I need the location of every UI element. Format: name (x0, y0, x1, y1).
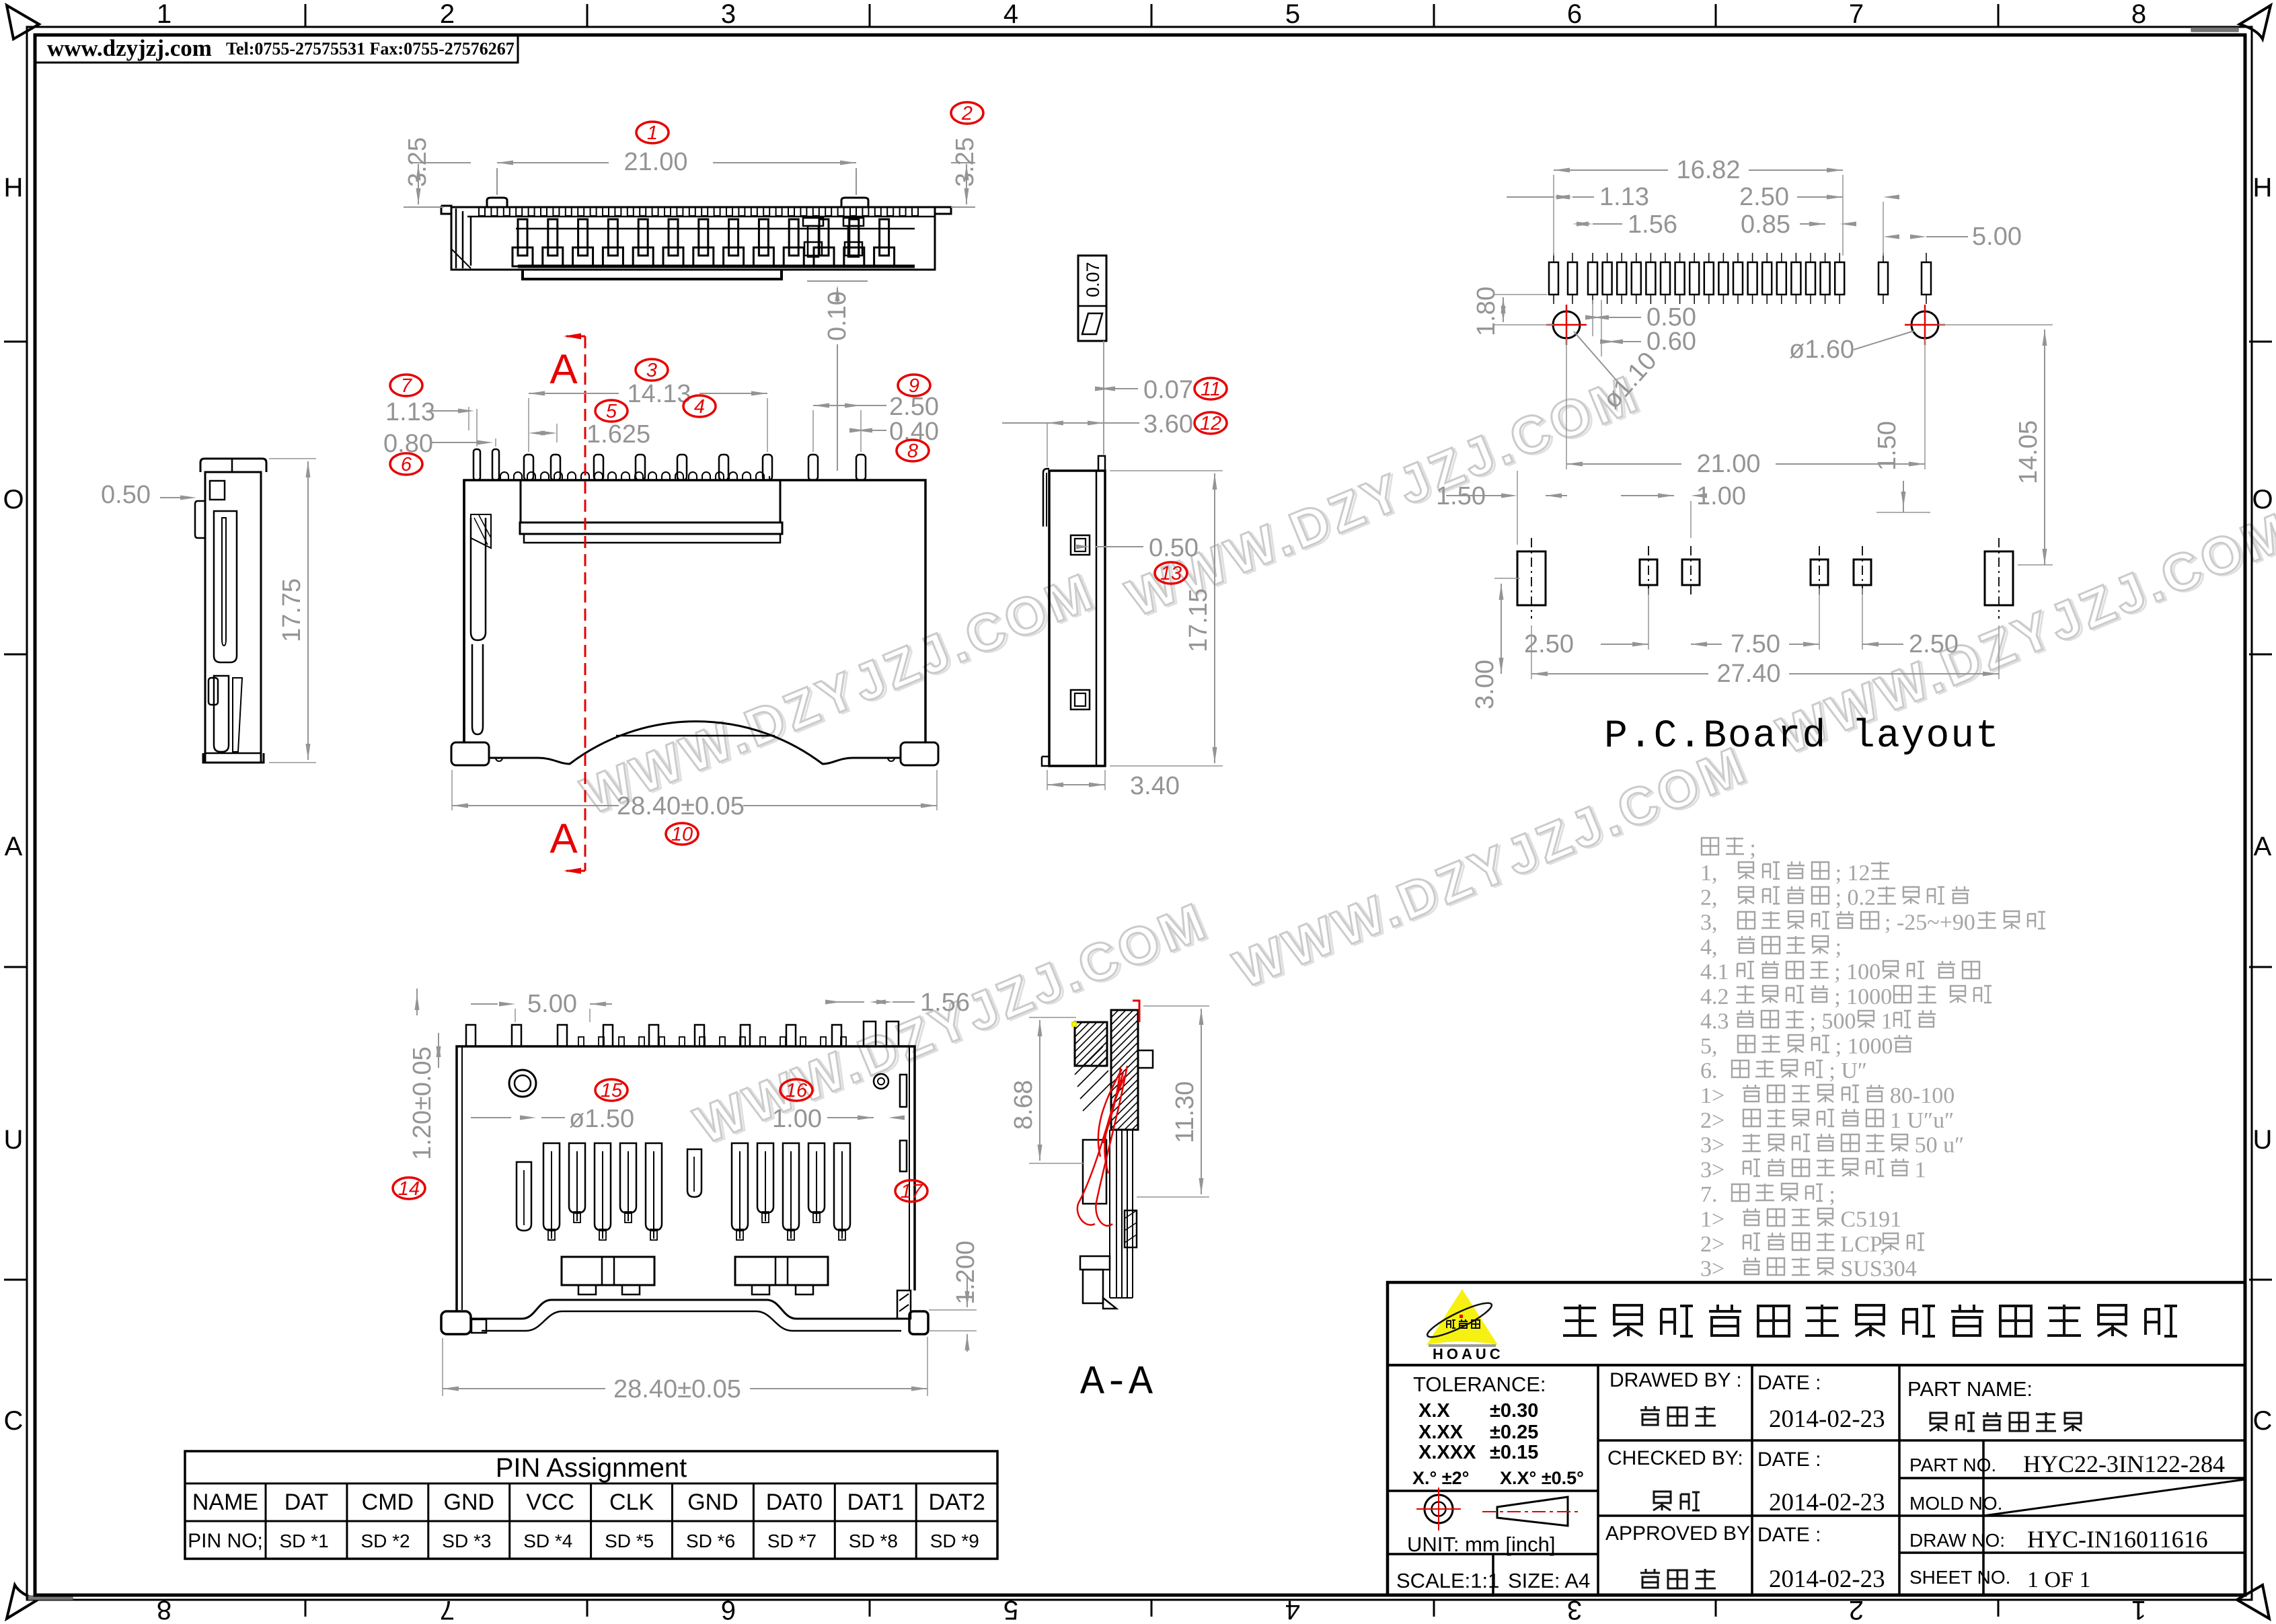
svg-text:2014-02-23: 2014-02-23 (1769, 1565, 1885, 1593)
svg-text:; 1000: ; 1000 (1835, 1034, 1893, 1058)
svg-text:1.80: 1.80 (1472, 286, 1501, 336)
svg-text:1.625: 1.625 (586, 420, 650, 449)
svg-text:0.07: 0.07 (1143, 376, 1193, 404)
svg-text:A-A: A-A (1080, 1360, 1153, 1406)
svg-text:28.40±0.05: 28.40±0.05 (613, 1375, 741, 1403)
svg-text:1.00: 1.00 (772, 1105, 822, 1133)
svg-text:3.00: 3.00 (1471, 660, 1499, 709)
svg-text:O: O (2252, 485, 2273, 514)
svg-text:2: 2 (961, 103, 973, 124)
svg-text:1: 1 (157, 0, 172, 29)
svg-text:HYC-IN16011616: HYC-IN16011616 (2027, 1526, 2208, 1553)
svg-text:1.50: 1.50 (1436, 482, 1486, 510)
svg-text:12: 12 (1200, 413, 1221, 434)
svg-text:0.10: 0.10 (823, 291, 851, 341)
svg-text:1 U″u″: 1 U″u″ (1890, 1108, 1954, 1133)
svg-text:3.60: 3.60 (1143, 410, 1193, 438)
svg-text:SD *6: SD *6 (686, 1531, 735, 1551)
svg-text:1,: 1, (1700, 861, 1718, 886)
svg-text:DATE :: DATE : (1757, 1372, 1821, 1394)
svg-text:P.C.Board layout: P.C.Board layout (1604, 715, 2000, 759)
svg-text:6: 6 (401, 454, 412, 475)
svg-text:A: A (5, 832, 23, 861)
svg-text:10: 10 (671, 824, 693, 845)
svg-text:4: 4 (1285, 1595, 1300, 1624)
svg-text:NAME: NAME (192, 1490, 258, 1515)
svg-text:80-100: 80-100 (1890, 1083, 1955, 1108)
svg-text:SD *5: SD *5 (605, 1531, 654, 1551)
svg-text:SD *8: SD *8 (849, 1531, 898, 1551)
svg-text:2.50: 2.50 (1909, 630, 1959, 658)
svg-text:CLK: CLK (609, 1490, 654, 1515)
svg-text:8: 8 (2131, 0, 2146, 29)
svg-text:3: 3 (1567, 1595, 1582, 1624)
svg-text:7: 7 (1849, 0, 1864, 29)
svg-text:X.X: X.X (1418, 1400, 1450, 1422)
svg-text:7.: 7. (1700, 1182, 1718, 1207)
svg-text:CHECKED BY:: CHECKED BY: (1607, 1447, 1743, 1469)
svg-text:1.50: 1.50 (1873, 421, 1901, 471)
svg-text:13: 13 (1160, 563, 1182, 584)
svg-text:±0.25: ±0.25 (1490, 1422, 1538, 1443)
svg-text:1.56: 1.56 (920, 989, 970, 1017)
svg-text:3: 3 (721, 0, 736, 29)
svg-text:SIZE: A4: SIZE: A4 (1508, 1569, 1590, 1592)
svg-text:; -25~+90: ; -25~+90 (1885, 910, 1975, 935)
svg-text:UNIT: mm [inch]: UNIT: mm [inch] (1407, 1533, 1555, 1556)
svg-text:DAT0: DAT0 (766, 1490, 823, 1515)
svg-text:SD *7: SD *7 (767, 1531, 817, 1551)
svg-text:U: U (2253, 1125, 2273, 1155)
svg-text:;: ; (1749, 836, 1755, 861)
svg-text:1.200: 1.200 (952, 1241, 980, 1305)
svg-text:0.60: 0.60 (1646, 327, 1696, 356)
svg-text:DATE :: DATE : (1757, 1524, 1821, 1546)
svg-text:HOAUC: HOAUC (1433, 1346, 1504, 1362)
svg-text:2.50: 2.50 (1739, 183, 1789, 211)
svg-text:2: 2 (440, 0, 455, 29)
svg-text:GND: GND (687, 1490, 738, 1515)
svg-text:16.82: 16.82 (1676, 156, 1740, 184)
svg-text:SD *9: SD *9 (930, 1531, 979, 1551)
svg-text:X.XX: X.XX (1418, 1422, 1464, 1443)
svg-text:1: 1 (1881, 1009, 1893, 1034)
svg-text:1>: 1> (1700, 1083, 1724, 1108)
svg-text:A: A (549, 346, 578, 393)
svg-text:1.13: 1.13 (1599, 183, 1649, 211)
svg-text:4,: 4, (1700, 935, 1718, 960)
svg-text:8: 8 (907, 440, 918, 462)
svg-text:PART NAME:: PART NAME: (1907, 1377, 2033, 1401)
svg-text:1: 1 (1915, 1157, 1926, 1182)
svg-text:0.50: 0.50 (1149, 534, 1199, 562)
svg-text:6.: 6. (1700, 1058, 1718, 1083)
svg-text:Tel:0755-27575531 Fax:0755-27: Tel:0755-27575531 Fax:0755-27576267 (226, 39, 515, 59)
svg-text:3.25: 3.25 (951, 137, 979, 187)
svg-text:DRAW NO:: DRAW NO: (1909, 1530, 2005, 1551)
svg-text:H: H (4, 173, 24, 202)
svg-text:6: 6 (721, 1595, 736, 1624)
svg-text:ø1.50: ø1.50 (569, 1105, 634, 1133)
svg-text:1.13: 1.13 (385, 398, 435, 426)
svg-text:6: 6 (1567, 0, 1582, 29)
svg-text:0.50: 0.50 (101, 481, 151, 509)
svg-text:SUS304: SUS304 (1840, 1257, 1916, 1282)
svg-text:ø1.60: ø1.60 (1789, 336, 1854, 364)
svg-text:; 100: ; 100 (1834, 960, 1881, 984)
svg-text:8.68: 8.68 (1010, 1080, 1038, 1130)
svg-text:2,: 2, (1700, 886, 1718, 911)
svg-text:1.00: 1.00 (1696, 482, 1746, 510)
svg-text:3>: 3> (1700, 1157, 1724, 1182)
svg-text:1.20±0.05: 1.20±0.05 (408, 1046, 437, 1160)
svg-text:3: 3 (646, 360, 657, 381)
svg-text:21.00: 21.00 (623, 148, 687, 176)
svg-text:APPROVED BY:: APPROVED BY: (1605, 1522, 1755, 1545)
svg-text:7: 7 (401, 375, 413, 397)
svg-text:; 0.2: ; 0.2 (1835, 886, 1876, 911)
svg-text:C: C (2253, 1406, 2273, 1436)
svg-text:PIN Assignment: PIN Assignment (496, 1453, 687, 1483)
svg-text:1 OF 1: 1 OF 1 (2027, 1568, 2090, 1592)
svg-text:7.50: 7.50 (1731, 630, 1780, 658)
svg-text:SD *4: SD *4 (523, 1531, 572, 1551)
svg-text:;: ; (1835, 935, 1842, 960)
svg-text:2>: 2> (1700, 1232, 1724, 1257)
svg-text:DAT2: DAT2 (929, 1490, 985, 1515)
svg-text:14.05: 14.05 (2014, 420, 2043, 484)
svg-text:X.X° ±0.5°: X.X° ±0.5° (1500, 1468, 1584, 1488)
svg-text:www.dzyjzj.com: www.dzyjzj.com (47, 35, 212, 61)
svg-text:HYC22-3IN122-284: HYC22-3IN122-284 (2023, 1451, 2225, 1477)
svg-text:9: 9 (909, 375, 919, 397)
svg-text:U: U (4, 1125, 24, 1155)
svg-text:11.30: 11.30 (1171, 1081, 1199, 1143)
svg-text:DAT1: DAT1 (847, 1490, 904, 1515)
svg-text:X.XXX: X.XXX (1418, 1442, 1476, 1463)
svg-text:17.75: 17.75 (278, 578, 306, 642)
svg-text:4.2: 4.2 (1700, 984, 1729, 1009)
svg-text:27.40: 27.40 (1716, 660, 1780, 688)
svg-text:2014-02-23: 2014-02-23 (1769, 1405, 1885, 1433)
svg-text:4.3: 4.3 (1700, 1009, 1729, 1034)
svg-text:±0.30: ±0.30 (1490, 1400, 1538, 1422)
svg-text:C5191: C5191 (1840, 1207, 1901, 1232)
svg-text:28.40±0.05: 28.40±0.05 (617, 792, 745, 820)
svg-text:C: C (4, 1406, 24, 1436)
svg-text:SD *3: SD *3 (442, 1531, 491, 1551)
svg-text:DRAWED BY :: DRAWED BY : (1609, 1369, 1742, 1391)
svg-text:3>: 3> (1700, 1257, 1724, 1282)
svg-text:3.25: 3.25 (404, 137, 432, 187)
svg-text:0.85: 0.85 (1741, 210, 1790, 239)
svg-text:1: 1 (647, 122, 658, 144)
svg-text:; 1000: ; 1000 (1834, 984, 1892, 1009)
svg-text:MOLD NO.: MOLD NO. (1909, 1493, 2002, 1514)
svg-text:3.40: 3.40 (1130, 772, 1180, 800)
svg-text:4.1: 4.1 (1700, 960, 1729, 984)
svg-text:H: H (2253, 173, 2273, 202)
svg-text:5.00: 5.00 (527, 990, 577, 1018)
svg-text:4: 4 (1003, 0, 1018, 29)
svg-text:50 u″: 50 u″ (1915, 1133, 1965, 1158)
svg-text:LCP,: LCP, (1840, 1232, 1885, 1257)
svg-text:±0.15: ±0.15 (1490, 1442, 1538, 1463)
svg-text:X.° ±2°: X.° ±2° (1412, 1468, 1469, 1488)
svg-text:14: 14 (398, 1178, 420, 1200)
svg-text:GND: GND (444, 1490, 495, 1515)
svg-text:SHEET NO.: SHEET NO. (1909, 1567, 2010, 1588)
svg-text:14.13: 14.13 (627, 380, 691, 408)
svg-text:SD *1: SD *1 (280, 1531, 329, 1551)
svg-text:; U″: ; U″ (1829, 1058, 1867, 1083)
svg-text:SD *2: SD *2 (361, 1531, 410, 1551)
svg-text:PART NO.: PART NO. (1909, 1455, 1996, 1475)
svg-text:VCC: VCC (526, 1490, 574, 1515)
svg-text:A: A (2254, 832, 2272, 861)
svg-text:TOLERANCE:: TOLERANCE: (1413, 1372, 1546, 1396)
svg-text:7: 7 (440, 1595, 455, 1624)
svg-text:3>: 3> (1700, 1133, 1724, 1158)
svg-text:DATE :: DATE : (1757, 1448, 1821, 1471)
svg-text:DAT: DAT (284, 1490, 328, 1515)
svg-text:O: O (3, 485, 24, 514)
svg-text:;: ; (1829, 1182, 1835, 1207)
svg-text:PIN NO;: PIN NO; (188, 1530, 263, 1552)
svg-text:1.56: 1.56 (1628, 210, 1677, 239)
svg-text:2: 2 (1849, 1595, 1864, 1624)
svg-text:3,: 3, (1700, 910, 1718, 935)
svg-text:5.00: 5.00 (1972, 223, 2022, 251)
svg-text:SCALE:1:1: SCALE:1:1 (1396, 1569, 1499, 1592)
svg-text:16: 16 (786, 1080, 808, 1101)
svg-text:4: 4 (694, 396, 705, 418)
svg-text:1>: 1> (1700, 1207, 1724, 1232)
svg-text:2014-02-23: 2014-02-23 (1769, 1489, 1885, 1516)
svg-text:11: 11 (1201, 379, 1221, 400)
svg-text:; 500: ; 500 (1810, 1009, 1856, 1034)
svg-text:15: 15 (601, 1080, 623, 1101)
svg-text:5,: 5, (1700, 1034, 1718, 1058)
svg-text:5: 5 (1285, 0, 1300, 29)
svg-text:21.00: 21.00 (1696, 450, 1760, 478)
svg-text:17.15: 17.15 (1184, 588, 1213, 652)
svg-text:; 12: ; 12 (1835, 861, 1870, 886)
svg-text:CMD: CMD (362, 1490, 414, 1515)
svg-text:1: 1 (2131, 1595, 2146, 1624)
svg-text:0.07: 0.07 (1083, 262, 1103, 297)
svg-text:17: 17 (901, 1181, 923, 1202)
svg-text:8: 8 (157, 1595, 172, 1624)
svg-text:A: A (549, 816, 578, 862)
svg-text:5: 5 (606, 401, 617, 422)
svg-text:2>: 2> (1700, 1108, 1724, 1133)
svg-text:5: 5 (1003, 1595, 1018, 1624)
